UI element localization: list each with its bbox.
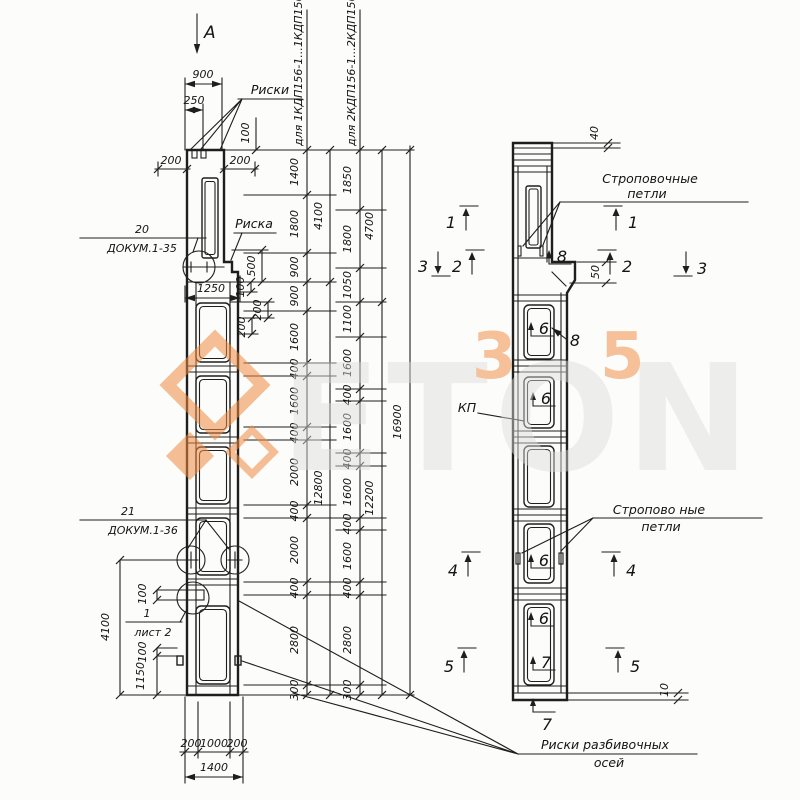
dim-200-left: 200 — [161, 154, 182, 167]
chain-b-seg: 400 — [341, 578, 354, 599]
joint-detail — [196, 590, 204, 600]
chain-b-seg: 1850 — [341, 166, 354, 194]
label-riska: Риска — [235, 216, 273, 231]
callout-21-number: 21 — [121, 505, 135, 518]
section-mark — [462, 552, 480, 576]
label-axes-line1: Риски разбивочных — [541, 737, 670, 752]
dim-1400-bottom: 1400 — [200, 761, 228, 774]
section-5-left: 5 — [444, 657, 454, 676]
chain-a-seg: 900 — [288, 257, 301, 278]
dim-200-step2: 200 — [235, 317, 248, 338]
drawing-sheet: А 900 250 Риски 100 200 200 20 ДОКУМ.1-3… — [0, 0, 800, 800]
side-slot-opening — [526, 186, 541, 248]
chain-b-seg: 1600 — [341, 542, 354, 570]
chain-a-seg: 1800 — [288, 210, 301, 238]
chain-b-seg: 1100 — [341, 305, 354, 333]
dim-40: 40 — [588, 126, 601, 140]
chain-b-subtotal: 4700 — [363, 212, 376, 240]
label-loops-top-2: петли — [627, 186, 666, 201]
front-opening — [196, 518, 230, 575]
chain-a-subtotal: 4100 — [312, 202, 325, 230]
watermark-digit-3: 3 — [472, 320, 517, 394]
section-mark — [674, 252, 692, 276]
section-3-right: 3 — [697, 259, 707, 278]
chain-b-label: для 2КДП156-1...2КДП156-7 — [345, 0, 358, 147]
section-4-left: 4 — [448, 561, 458, 580]
dim-200-bottom-right: 200 — [227, 737, 248, 750]
axis-mark — [177, 656, 183, 665]
chain-a-seg: 300 — [288, 680, 301, 701]
section-mark — [466, 250, 484, 274]
dim-200-right: 200 — [230, 154, 251, 167]
dim-1150: 1150 — [134, 662, 147, 690]
dim-200-bottom-left: 200 — [181, 737, 202, 750]
dim-900: 900 — [193, 68, 214, 81]
callout-1-number: 1 — [144, 607, 151, 620]
dim-4100-left: 4100 — [99, 613, 112, 641]
watermark-chevron — [166, 432, 214, 480]
position-7: 7 — [542, 715, 553, 734]
position-6: 6 — [539, 551, 549, 570]
section-1-left: 1 — [446, 213, 456, 232]
chain-b-seg: 1050 — [341, 271, 354, 299]
section-mark — [602, 552, 620, 576]
dim-500: 500 — [245, 256, 258, 277]
section-2-right: 2 — [622, 257, 632, 276]
section-1-right: 1 — [628, 213, 638, 232]
callout-1-sheet: лист 2 — [133, 626, 171, 639]
callout-20-doc: ДОКУМ.1-35 — [106, 242, 177, 255]
watermark: ETON 3 5 — [166, 320, 756, 505]
technical-drawing: А 900 250 Риски 100 200 200 20 ДОКУМ.1-3… — [0, 0, 800, 800]
position-6: 6 — [539, 609, 549, 628]
label-loops-top-1: Строповочные — [602, 171, 698, 186]
lifting-loop — [518, 246, 521, 256]
dim-250: 250 — [184, 94, 205, 107]
watermark-digit-5: 5 — [600, 320, 645, 394]
watermark-letters: ETON — [280, 333, 756, 505]
dim-10: 10 — [658, 683, 671, 697]
chain-a-seg: 1400 — [288, 158, 301, 186]
section-mark — [458, 648, 476, 672]
watermark-chevron — [168, 338, 262, 432]
label-loops-bottom-2: петли — [641, 519, 680, 534]
section-2-left: 2 — [452, 257, 462, 276]
section-5-right: 5 — [630, 657, 640, 676]
section-mark — [460, 206, 478, 230]
dim-50: 50 — [589, 265, 602, 279]
chain-a-label: для 1КДП156-1...1КДП156-4 — [292, 0, 305, 147]
dim-1250: 1250 — [197, 282, 225, 295]
label-riski: Риски — [251, 82, 289, 97]
chain-a-seg: 400 — [288, 578, 301, 599]
lifting-loop — [540, 246, 543, 256]
section-3-left: 3 — [418, 257, 428, 276]
arrowhead — [194, 44, 200, 54]
chain-b-seg: 400 — [341, 514, 354, 535]
callout-21-doc: ДОКУМ.1-36 — [107, 524, 178, 537]
dim-100-top: 100 — [239, 123, 252, 144]
chain-b-seg: 1800 — [341, 225, 354, 253]
section-mark — [606, 648, 624, 672]
chain-a-seg: 900 — [288, 286, 301, 307]
front-slot-opening — [202, 178, 218, 258]
dim-100-a: 100 — [136, 584, 149, 605]
callout-20-number: 20 — [135, 223, 149, 236]
position-7: 7 — [541, 653, 552, 672]
front-opening — [196, 606, 230, 684]
section-mark — [604, 206, 622, 230]
dim-100-corbel: 100 — [234, 277, 247, 298]
chain-b-seg: 300 — [341, 680, 354, 701]
dim-1000-bottom: 1000 — [200, 737, 228, 750]
view-letter: А — [203, 23, 216, 43]
section-4-right: 4 — [626, 561, 636, 580]
position-8: 8 — [557, 247, 567, 266]
section-mark — [432, 252, 450, 276]
chain-a-seg: 2000 — [288, 536, 301, 564]
dim-100-b: 100 — [136, 642, 149, 663]
label-axes-line2: осей — [594, 755, 624, 770]
chain-a-seg: 2800 — [288, 626, 301, 654]
chain-b-seg: 2800 — [341, 626, 354, 654]
